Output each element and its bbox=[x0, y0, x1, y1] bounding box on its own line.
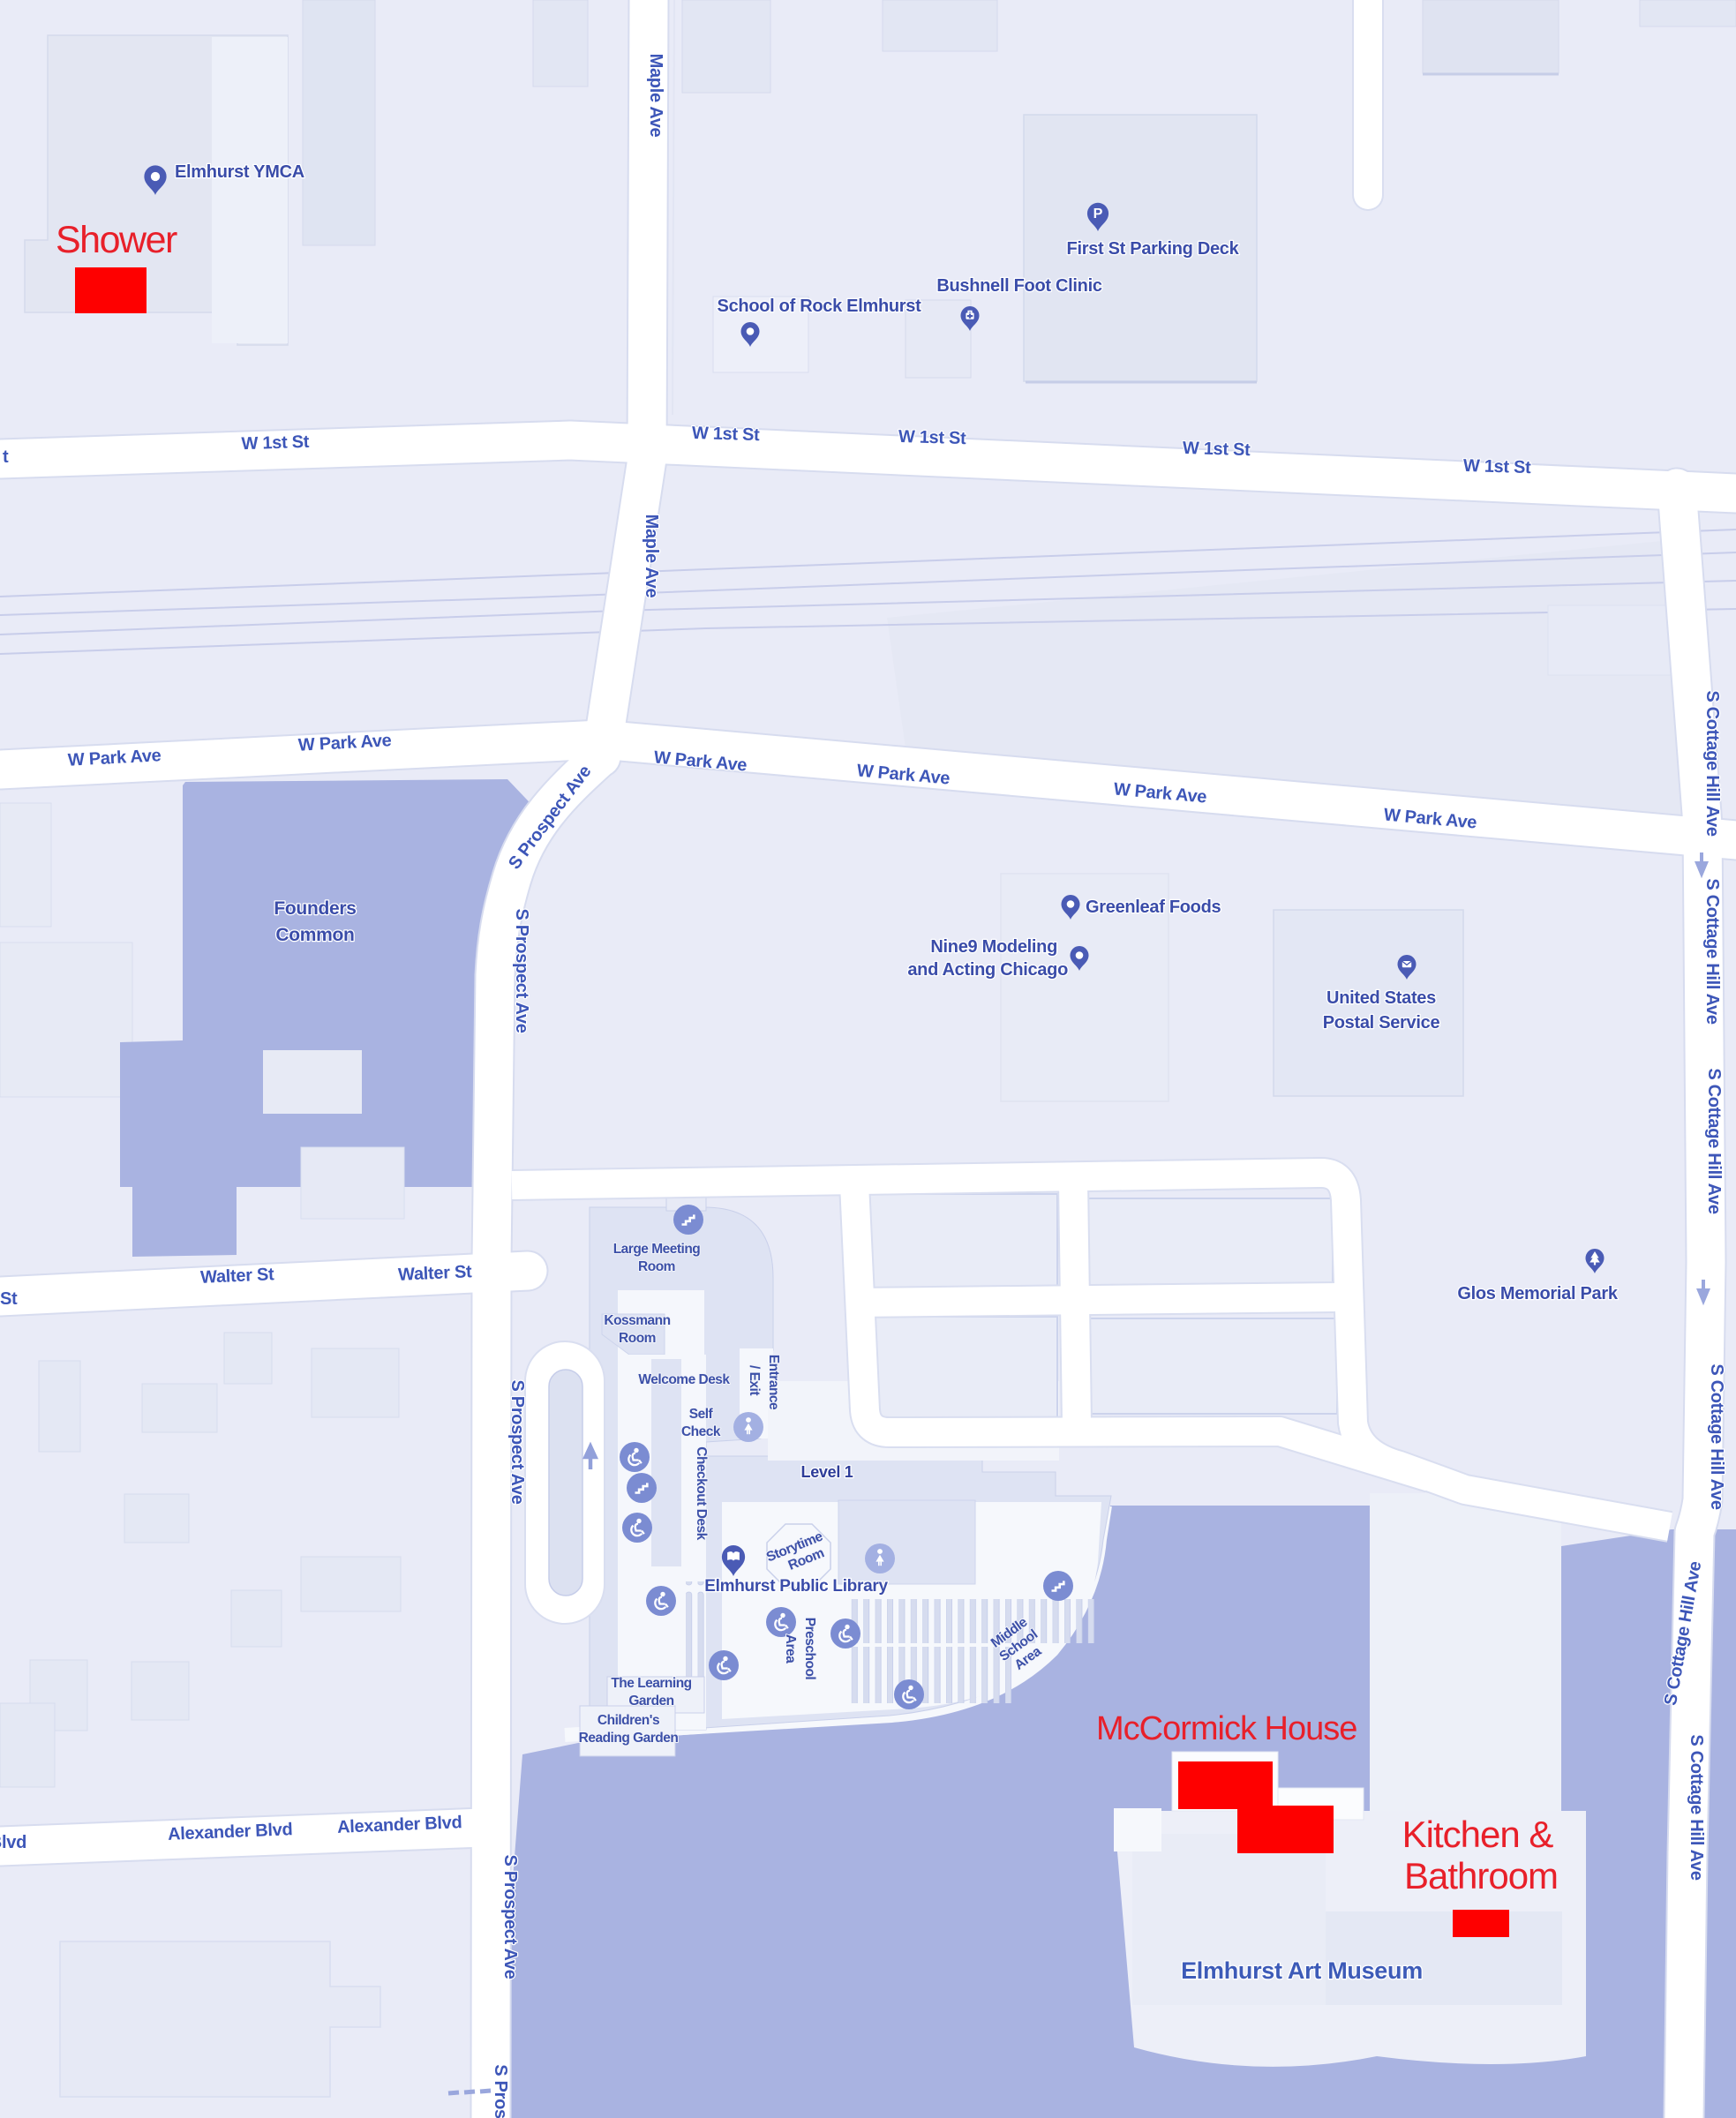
svg-text:McCormick House: McCormick House bbox=[1096, 1710, 1356, 1747]
svg-text:Greenleaf Foods: Greenleaf Foods bbox=[1086, 898, 1221, 917]
svg-text:Elmhurst Public Library: Elmhurst Public Library bbox=[704, 1577, 888, 1596]
svg-text:Shower: Shower bbox=[56, 219, 177, 261]
svg-text:W 1st St: W 1st St bbox=[241, 432, 310, 454]
svg-text:The Learning: The Learning bbox=[611, 1676, 691, 1691]
svg-text:Elmhurst Art Museum: Elmhurst Art Museum bbox=[1181, 1957, 1423, 1984]
svg-text:S Prospect: S Prospect bbox=[491, 2064, 510, 2118]
svg-text:Kossmann: Kossmann bbox=[604, 1313, 670, 1328]
svg-text:Postal Service: Postal Service bbox=[1323, 1013, 1440, 1033]
svg-text:Founders: Founders bbox=[274, 898, 356, 919]
svg-text:Entrance: Entrance bbox=[766, 1355, 781, 1410]
svg-text:S Prospect Ave: S Prospect Ave bbox=[507, 1379, 527, 1504]
svg-text:/ Exit: / Exit bbox=[747, 1365, 762, 1395]
svg-text:S Cottage Hill Ave: S Cottage Hill Ave bbox=[1702, 878, 1722, 1025]
svg-text:United States: United States bbox=[1326, 988, 1436, 1008]
svg-text:and Acting Chicago: and Acting Chicago bbox=[907, 960, 1068, 980]
svg-text:P: P bbox=[1093, 206, 1103, 222]
svg-text:W 1st St: W 1st St bbox=[898, 427, 967, 448]
svg-text:First St Parking Deck: First St Parking Deck bbox=[1067, 239, 1240, 259]
svg-text:S Prospect Ave: S Prospect Ave bbox=[512, 908, 531, 1033]
svg-text:Common: Common bbox=[275, 925, 354, 945]
svg-text:W 1st St: W 1st St bbox=[1463, 456, 1532, 477]
svg-text:Children's: Children's bbox=[597, 1713, 659, 1728]
svg-text:Room: Room bbox=[619, 1331, 656, 1346]
svg-text:S Cottage Hill Ave: S Cottage Hill Ave bbox=[1702, 690, 1722, 837]
svg-text:Walter St: Walter St bbox=[200, 1265, 275, 1288]
svg-text:Elmhurst YMCA: Elmhurst YMCA bbox=[175, 162, 304, 182]
svg-text:Maple Ave: Maple Ave bbox=[642, 514, 661, 598]
svg-text:W 1st St: W 1st St bbox=[692, 424, 761, 445]
svg-text:S Cottage Hill Ave: S Cottage Hill Ave bbox=[1707, 1363, 1726, 1510]
svg-text:St: St bbox=[0, 1289, 18, 1309]
svg-text:W 1st St: W 1st St bbox=[1183, 439, 1251, 460]
svg-text:S Prospect Ave: S Prospect Ave bbox=[500, 1854, 520, 1979]
svg-text:Bushnell Foot Clinic: Bushnell Foot Clinic bbox=[936, 276, 1102, 296]
svg-text:Maple Ave: Maple Ave bbox=[646, 54, 665, 138]
svg-text:Preschool: Preschool bbox=[802, 1618, 817, 1680]
svg-text:t: t bbox=[3, 447, 9, 467]
svg-text:Self: Self bbox=[689, 1407, 714, 1422]
svg-text:Walter St: Walter St bbox=[398, 1262, 473, 1285]
svg-text:Kitchen &: Kitchen & bbox=[1402, 1814, 1554, 1855]
svg-text:Checkout Desk: Checkout Desk bbox=[694, 1446, 709, 1540]
svg-text:Reading Garden: Reading Garden bbox=[579, 1731, 679, 1746]
svg-text:Area: Area bbox=[783, 1634, 798, 1664]
svg-text:School of Rock Elmhurst: School of Rock Elmhurst bbox=[718, 297, 922, 316]
svg-text:Room: Room bbox=[638, 1259, 675, 1274]
svg-text:Garden: Garden bbox=[628, 1694, 673, 1709]
svg-text:S Cottage Hill Ave: S Cottage Hill Ave bbox=[1704, 1068, 1724, 1214]
svg-text:Glos Memorial Park: Glos Memorial Park bbox=[1457, 1284, 1619, 1303]
svg-text:Bathroom: Bathroom bbox=[1404, 1855, 1558, 1896]
svg-text:Check: Check bbox=[681, 1424, 721, 1439]
svg-text:Welcome Desk: Welcome Desk bbox=[638, 1372, 730, 1387]
svg-text:Large Meeting: Large Meeting bbox=[613, 1242, 701, 1257]
svg-text:Level 1: Level 1 bbox=[801, 1463, 853, 1481]
svg-text:S Cottage Hill Ave: S Cottage Hill Ave bbox=[1687, 1734, 1706, 1881]
svg-text:Blvd: Blvd bbox=[0, 1833, 26, 1852]
svg-text:Nine9 Modeling: Nine9 Modeling bbox=[930, 937, 1057, 957]
